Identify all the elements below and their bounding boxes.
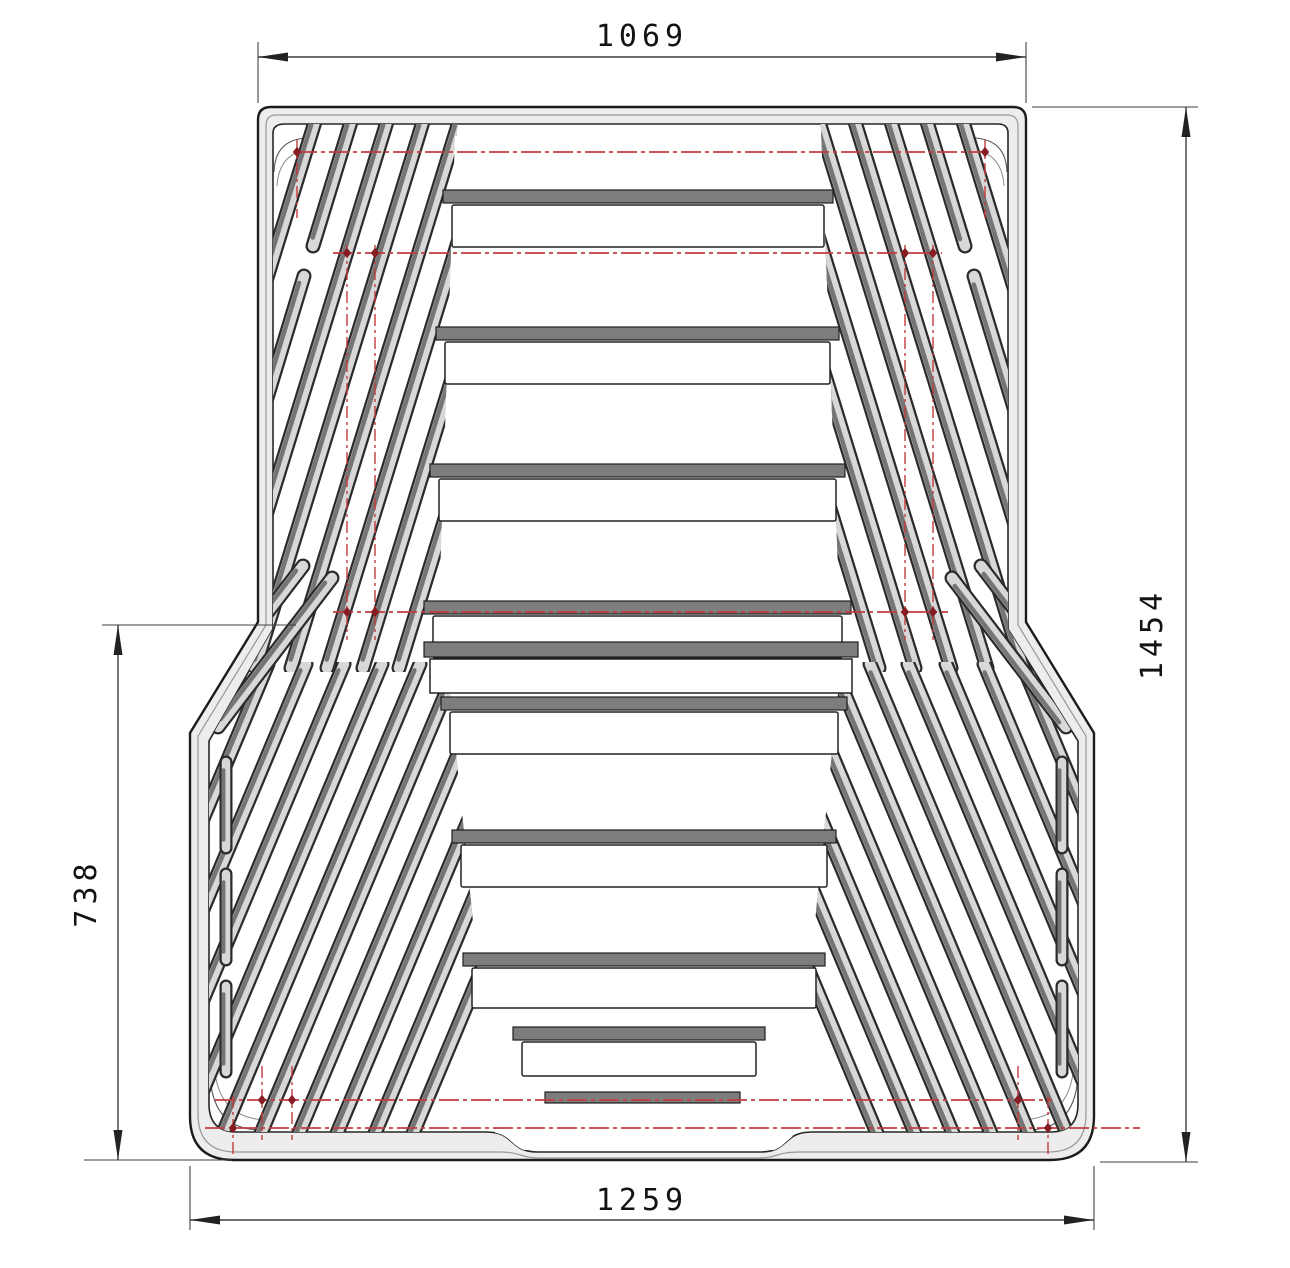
dim-lower-section-length-label: 738: [69, 858, 104, 927]
technical-drawing-canvas: 1069 1454 738 1259: [0, 0, 1290, 1268]
bed-liner-drawing: 1069 1454 738 1259: [0, 0, 1290, 1268]
dim-top-width-label: 1069: [596, 19, 688, 54]
dim-bottom-width-label: 1259: [596, 1183, 688, 1218]
rib-pattern: [64, 112, 1226, 1150]
dim-overall-length-label: 1454: [1135, 588, 1170, 680]
